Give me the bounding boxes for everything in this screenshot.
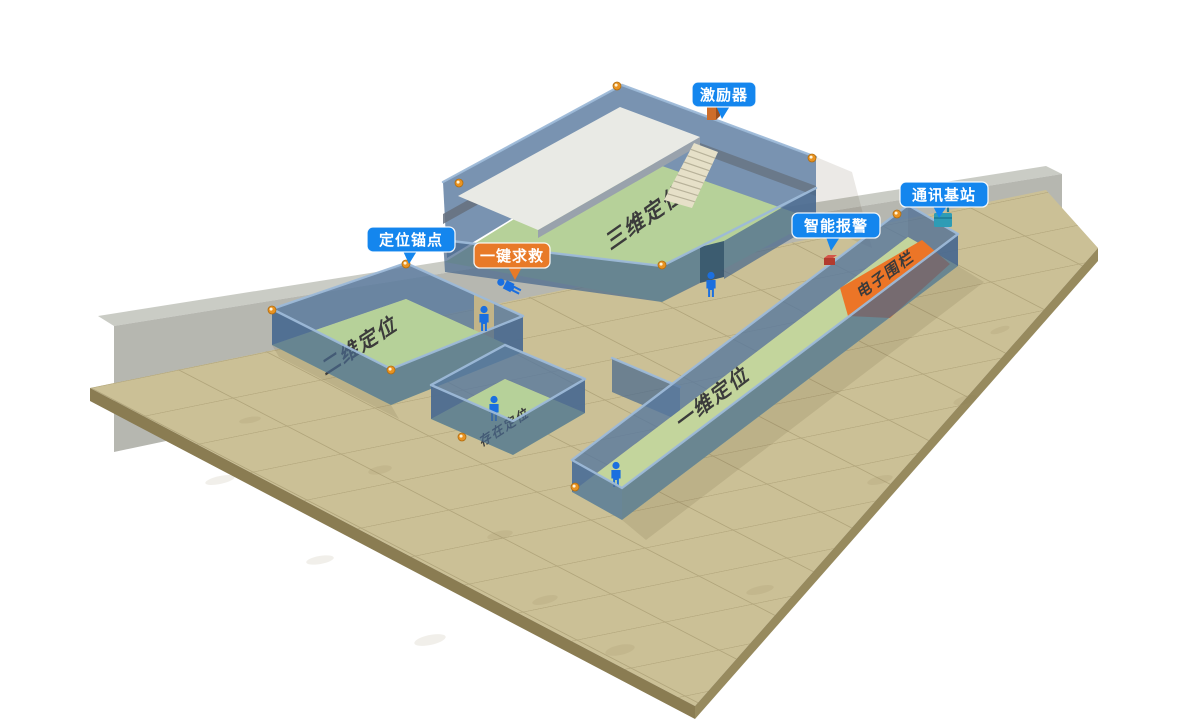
smart-alarm-body xyxy=(824,258,835,265)
anchor-room3d-east[interactable] xyxy=(808,154,816,162)
badge-comm-station-label: 通讯基站 xyxy=(912,186,976,204)
badge-sos-label: 一键求救 xyxy=(480,247,544,265)
anchor-room2d-west[interactable] xyxy=(268,306,276,314)
badge-exciter-label: 激励器 xyxy=(700,86,748,104)
anchor-room2d-south[interactable] xyxy=(387,366,395,374)
anchor-corridor-sw[interactable] xyxy=(571,483,579,491)
comm-station-body xyxy=(934,213,952,227)
anchor-room3d-west[interactable] xyxy=(455,179,463,187)
badge-smart-alarm-label: 智能报警 xyxy=(804,217,868,235)
positioning-scene: 二维定位 存在定位 三维定位 xyxy=(0,0,1200,723)
anchor-room-presence[interactable] xyxy=(458,433,466,441)
anchor-room3d-south[interactable] xyxy=(658,261,666,269)
anchor-room3d-north[interactable] xyxy=(613,82,621,90)
badge-anchor-point-label: 定位锚点 xyxy=(379,231,443,249)
scene-canvas: 二维定位 存在定位 三维定位 xyxy=(0,0,1200,723)
anchor-corridor-ne[interactable] xyxy=(893,210,901,218)
